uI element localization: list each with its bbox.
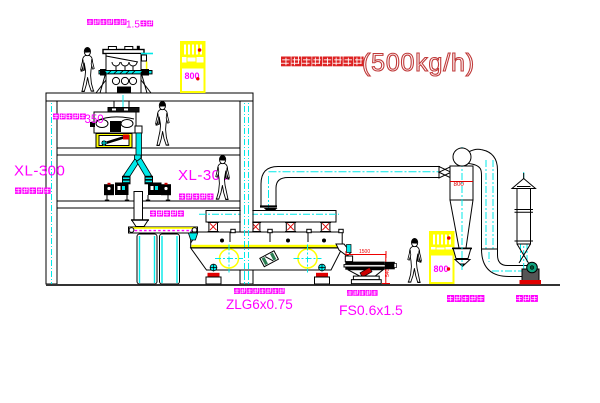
svg-text:800: 800: [454, 181, 465, 188]
svg-text:540: 540: [385, 268, 391, 277]
svg-text:1.5: 1.5: [126, 20, 140, 31]
svg-text:1500: 1500: [359, 249, 370, 255]
svg-text:XL-300: XL-300: [14, 163, 65, 180]
svg-text:FS0.6x1.5: FS0.6x1.5: [339, 302, 403, 318]
svg-text:(500kg/h): (500kg/h): [362, 49, 475, 77]
svg-text:350: 350: [85, 114, 104, 126]
svg-text:800: 800: [434, 264, 449, 274]
svg-text:ZLG6x0.75: ZLG6x0.75: [226, 297, 293, 312]
